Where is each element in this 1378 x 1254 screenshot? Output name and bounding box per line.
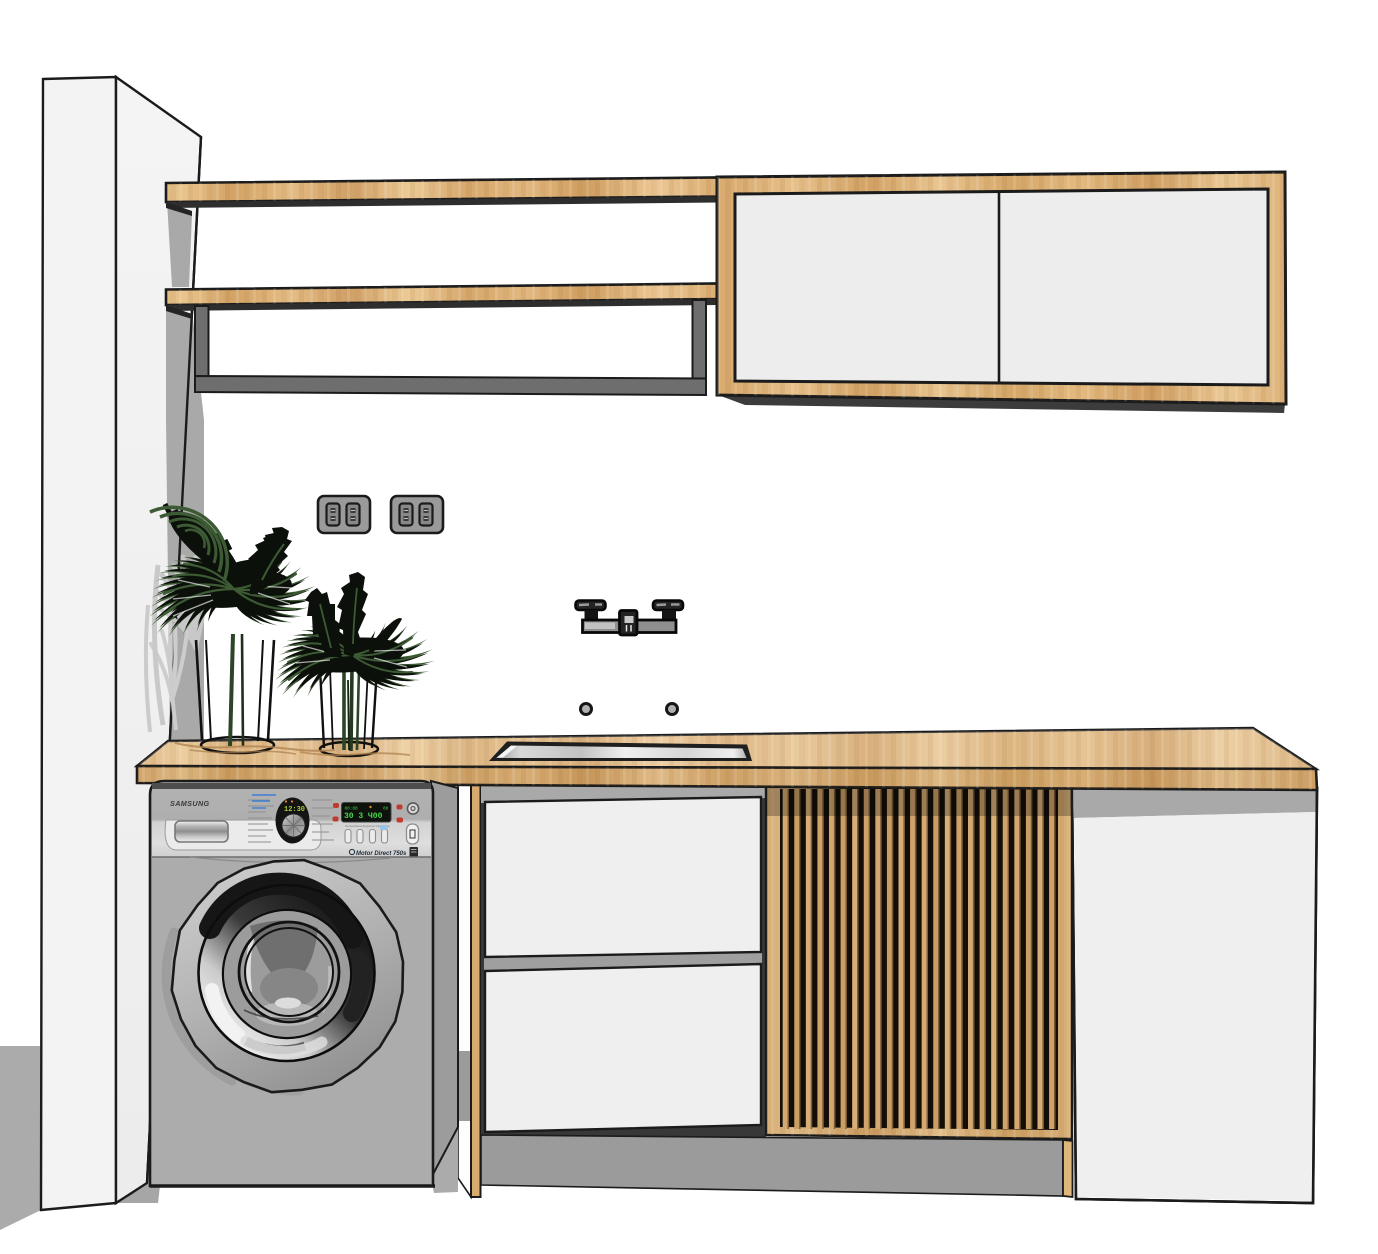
svg-text:88:88: 88:88: [345, 807, 359, 812]
svg-text:12:30: 12:30: [284, 806, 305, 814]
svg-text:30 3 Ч00: 30 3 Ч00: [344, 812, 383, 821]
svg-text:88: 88: [383, 807, 389, 812]
svg-text:Motor Direct 750s: Motor Direct 750s: [356, 851, 407, 857]
svg-text:SAMSUNG: SAMSUNG: [170, 799, 210, 808]
